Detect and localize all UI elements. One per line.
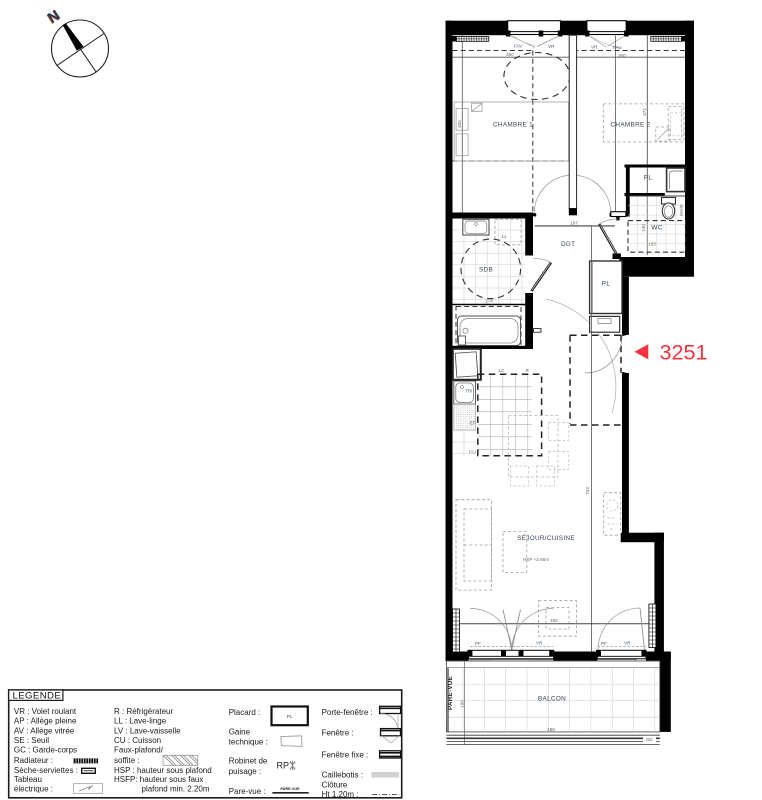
svg-text:VR: VR xyxy=(548,44,555,49)
svg-text:FAV: FAV xyxy=(514,44,523,49)
svg-text:Caillebotis :: Caillebotis : xyxy=(322,771,363,780)
svg-text:Radiateur :: Radiateur : xyxy=(14,756,53,765)
svg-text:140: 140 xyxy=(641,224,646,232)
svg-text:R : Réfrigérateur: R : Réfrigérateur xyxy=(114,707,173,716)
svg-text:VR: VR xyxy=(591,45,598,50)
svg-text:VR : Volet roulant: VR : Volet roulant xyxy=(14,707,77,716)
svg-text:100: 100 xyxy=(459,700,464,708)
svg-text:3251: 3251 xyxy=(660,340,708,365)
svg-text:SDB: SDB xyxy=(479,267,493,274)
svg-text:Fenêtre :: Fenêtre : xyxy=(322,728,354,737)
svg-text:Pare-vue :: Pare-vue : xyxy=(229,787,266,796)
svg-text:PL: PL xyxy=(287,714,293,719)
svg-text:482: 482 xyxy=(550,618,558,623)
svg-text:Clôture: Clôture xyxy=(322,781,348,790)
svg-text:puisage :: puisage : xyxy=(229,767,261,776)
svg-text:soffite :: soffite : xyxy=(114,756,140,765)
svg-text:153: 153 xyxy=(648,242,656,247)
svg-text:197: 197 xyxy=(570,220,578,225)
svg-text:DGT: DGT xyxy=(561,241,575,248)
svg-text:PF: PF xyxy=(475,641,481,646)
svg-text:TRI: TRI xyxy=(465,389,472,394)
svg-text:plafond min. 2.20m: plafond min. 2.20m xyxy=(142,785,210,794)
svg-text:Fenêtre fixe :: Fenêtre fixe : xyxy=(322,750,369,759)
svg-text:LEGENDE: LEGENDE xyxy=(13,691,62,702)
svg-text:électrique :: électrique : xyxy=(14,785,53,794)
svg-text:Placard :: Placard : xyxy=(229,708,261,717)
svg-text:Porte-fenêtre :: Porte-fenêtre : xyxy=(322,708,373,717)
svg-text:AV : Allège vitrée: AV : Allège vitrée xyxy=(14,727,75,736)
svg-text:technique :: technique : xyxy=(229,737,268,746)
svg-text:PL: PL xyxy=(644,175,653,182)
svg-text:498: 498 xyxy=(547,727,555,732)
svg-text:Robinet de: Robinet de xyxy=(229,756,268,765)
svg-text:Gaine: Gaine xyxy=(229,728,251,737)
svg-text:Ht 1.20m :: Ht 1.20m : xyxy=(322,790,359,799)
svg-text:VR: VR xyxy=(624,641,631,646)
svg-text:371: 371 xyxy=(642,108,647,116)
svg-text:LC: LC xyxy=(499,368,506,373)
svg-text:260: 260 xyxy=(618,53,626,58)
svg-text:174: 174 xyxy=(485,299,493,304)
svg-text:HSFP: hauteur sous faux: HSFP: hauteur sous faux xyxy=(114,775,203,784)
svg-text:RP: RP xyxy=(277,761,290,771)
svg-text:CU : Cuisson: CU : Cuisson xyxy=(114,736,161,745)
svg-text:LV : Lave-vaisselle: LV : Lave-vaisselle xyxy=(114,727,181,736)
svg-text:Tableau: Tableau xyxy=(14,775,42,784)
svg-text:BALCON: BALCON xyxy=(538,696,566,703)
svg-text:SÉJOUR/CUISINE: SÉJOUR/CUISINE xyxy=(517,533,575,542)
svg-text:PARE-VUE: PARE-VUE xyxy=(280,787,300,791)
svg-text:Faux-plafond/: Faux-plafond/ xyxy=(114,746,164,755)
svg-text:VR: VR xyxy=(536,641,543,646)
svg-text:LL : Lave-linge: LL : Lave-linge xyxy=(114,717,167,726)
svg-text:AP : Allège pleine: AP : Allège pleine xyxy=(14,717,77,726)
svg-text:PL: PL xyxy=(602,281,611,288)
svg-text:GC: GC xyxy=(646,737,653,742)
svg-text:EF: EF xyxy=(470,421,476,426)
svg-text:FAV: FAV xyxy=(613,45,622,50)
svg-text:SE : Seuil: SE : Seuil xyxy=(14,736,49,745)
svg-text:753: 753 xyxy=(585,487,590,495)
svg-text:CHAMBRE 1: CHAMBRE 1 xyxy=(493,122,533,129)
svg-text:tablette: tablette xyxy=(680,204,684,216)
svg-text:280: 280 xyxy=(506,52,514,57)
svg-text:405: 405 xyxy=(457,120,462,128)
svg-text:PF: PF xyxy=(601,641,607,646)
svg-text:GC : Garde-corps: GC : Garde-corps xyxy=(14,746,77,755)
svg-text:CHAMBRE 2: CHAMBRE 2 xyxy=(611,122,651,129)
svg-text:LL: LL xyxy=(502,234,508,239)
svg-text:Sèche-serviettes :: Sèche-serviettes : xyxy=(14,766,78,775)
svg-text:HSP : hauteur sous plafond: HSP : hauteur sous plafond xyxy=(114,766,212,775)
svg-text:WC: WC xyxy=(651,225,662,232)
